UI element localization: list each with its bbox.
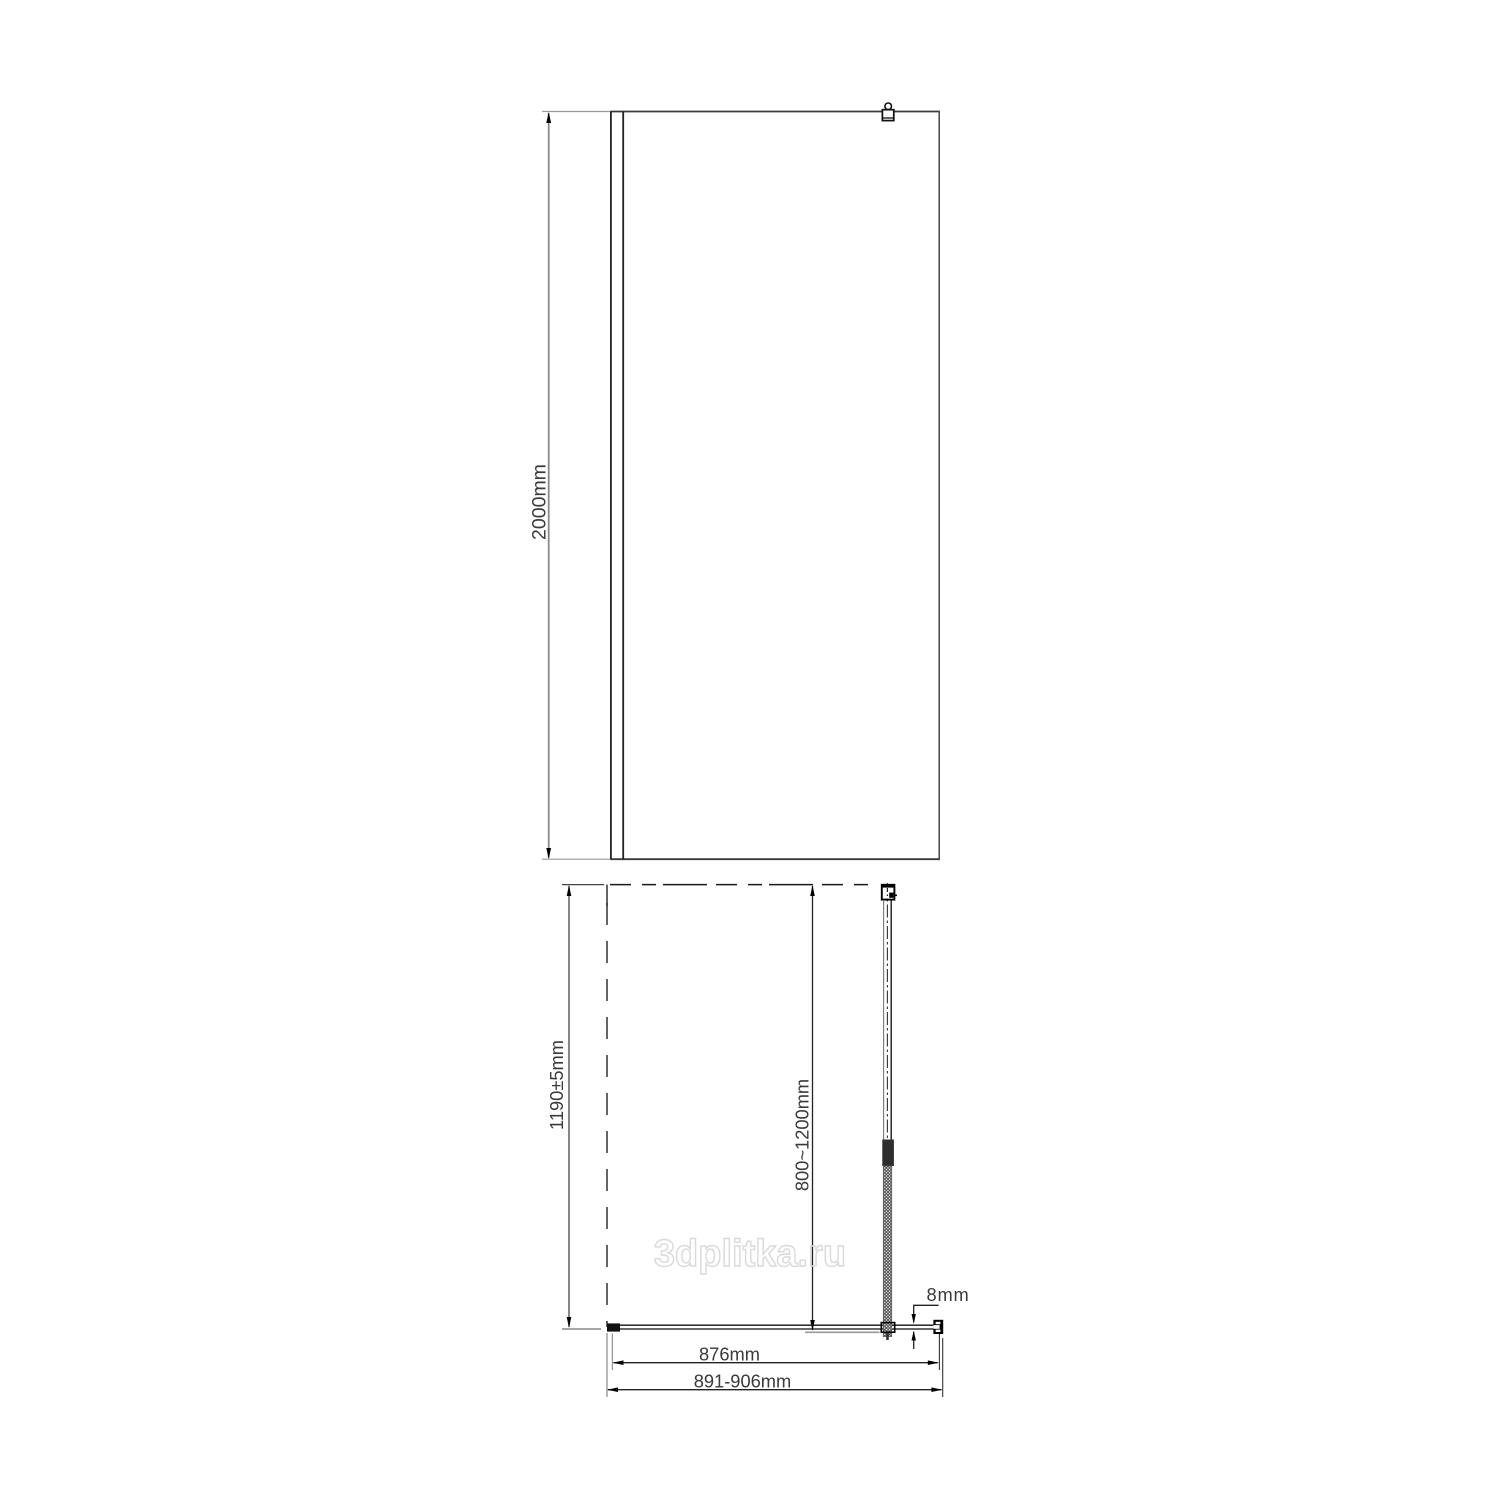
svg-text:8mm: 8mm: [927, 1284, 970, 1305]
svg-text:891-906mm: 891-906mm: [694, 1370, 792, 1391]
svg-text:2000mm: 2000mm: [529, 464, 551, 540]
svg-text:3dplitka.ru: 3dplitka.ru: [654, 1233, 846, 1275]
svg-text:876mm: 876mm: [699, 1343, 760, 1364]
svg-text:800~1200mm: 800~1200mm: [791, 1079, 812, 1191]
svg-text:1190±5mm: 1190±5mm: [546, 1040, 567, 1130]
